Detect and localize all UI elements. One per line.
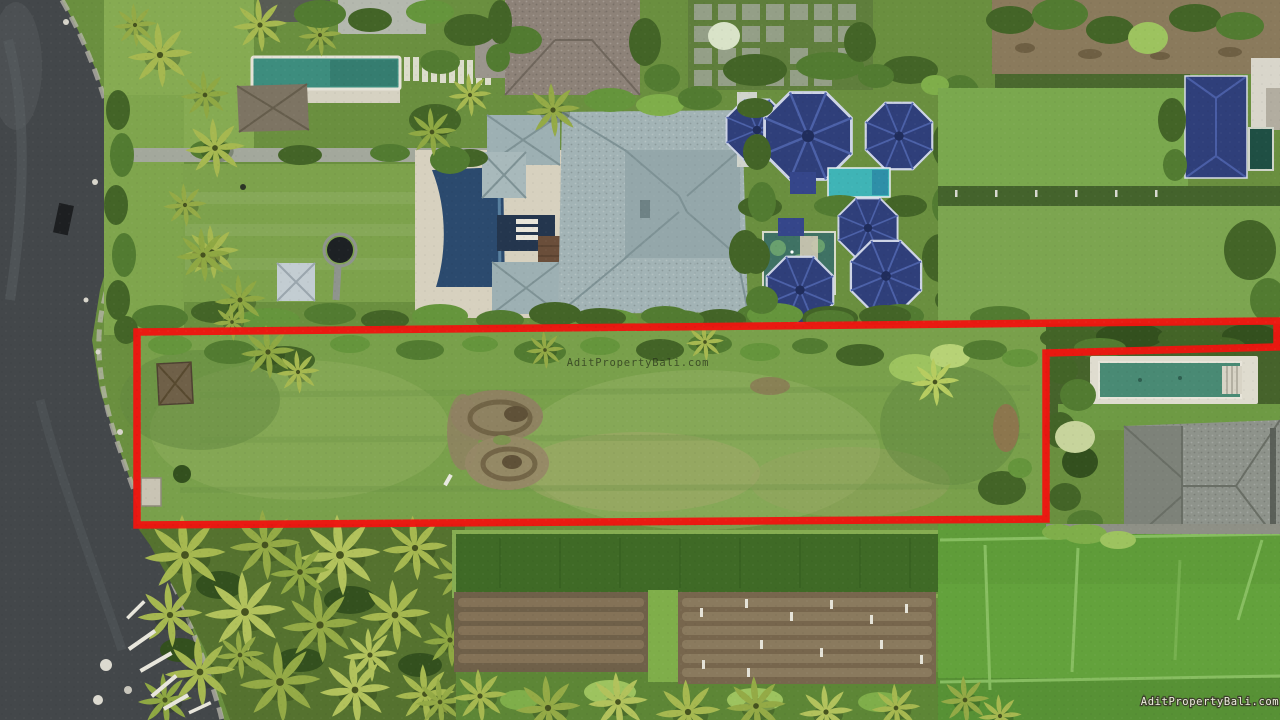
- watermark-center: AditPropertyBali.com: [567, 357, 709, 369]
- aerial-photo-stage: AditPropertyBali.com AditPropertyBali.co…: [0, 0, 1280, 720]
- aerial-photo: AditPropertyBali.com AditPropertyBali.co…: [0, 0, 1280, 720]
- watermark-bottom-right: AditPropertyBali.com: [1141, 696, 1279, 708]
